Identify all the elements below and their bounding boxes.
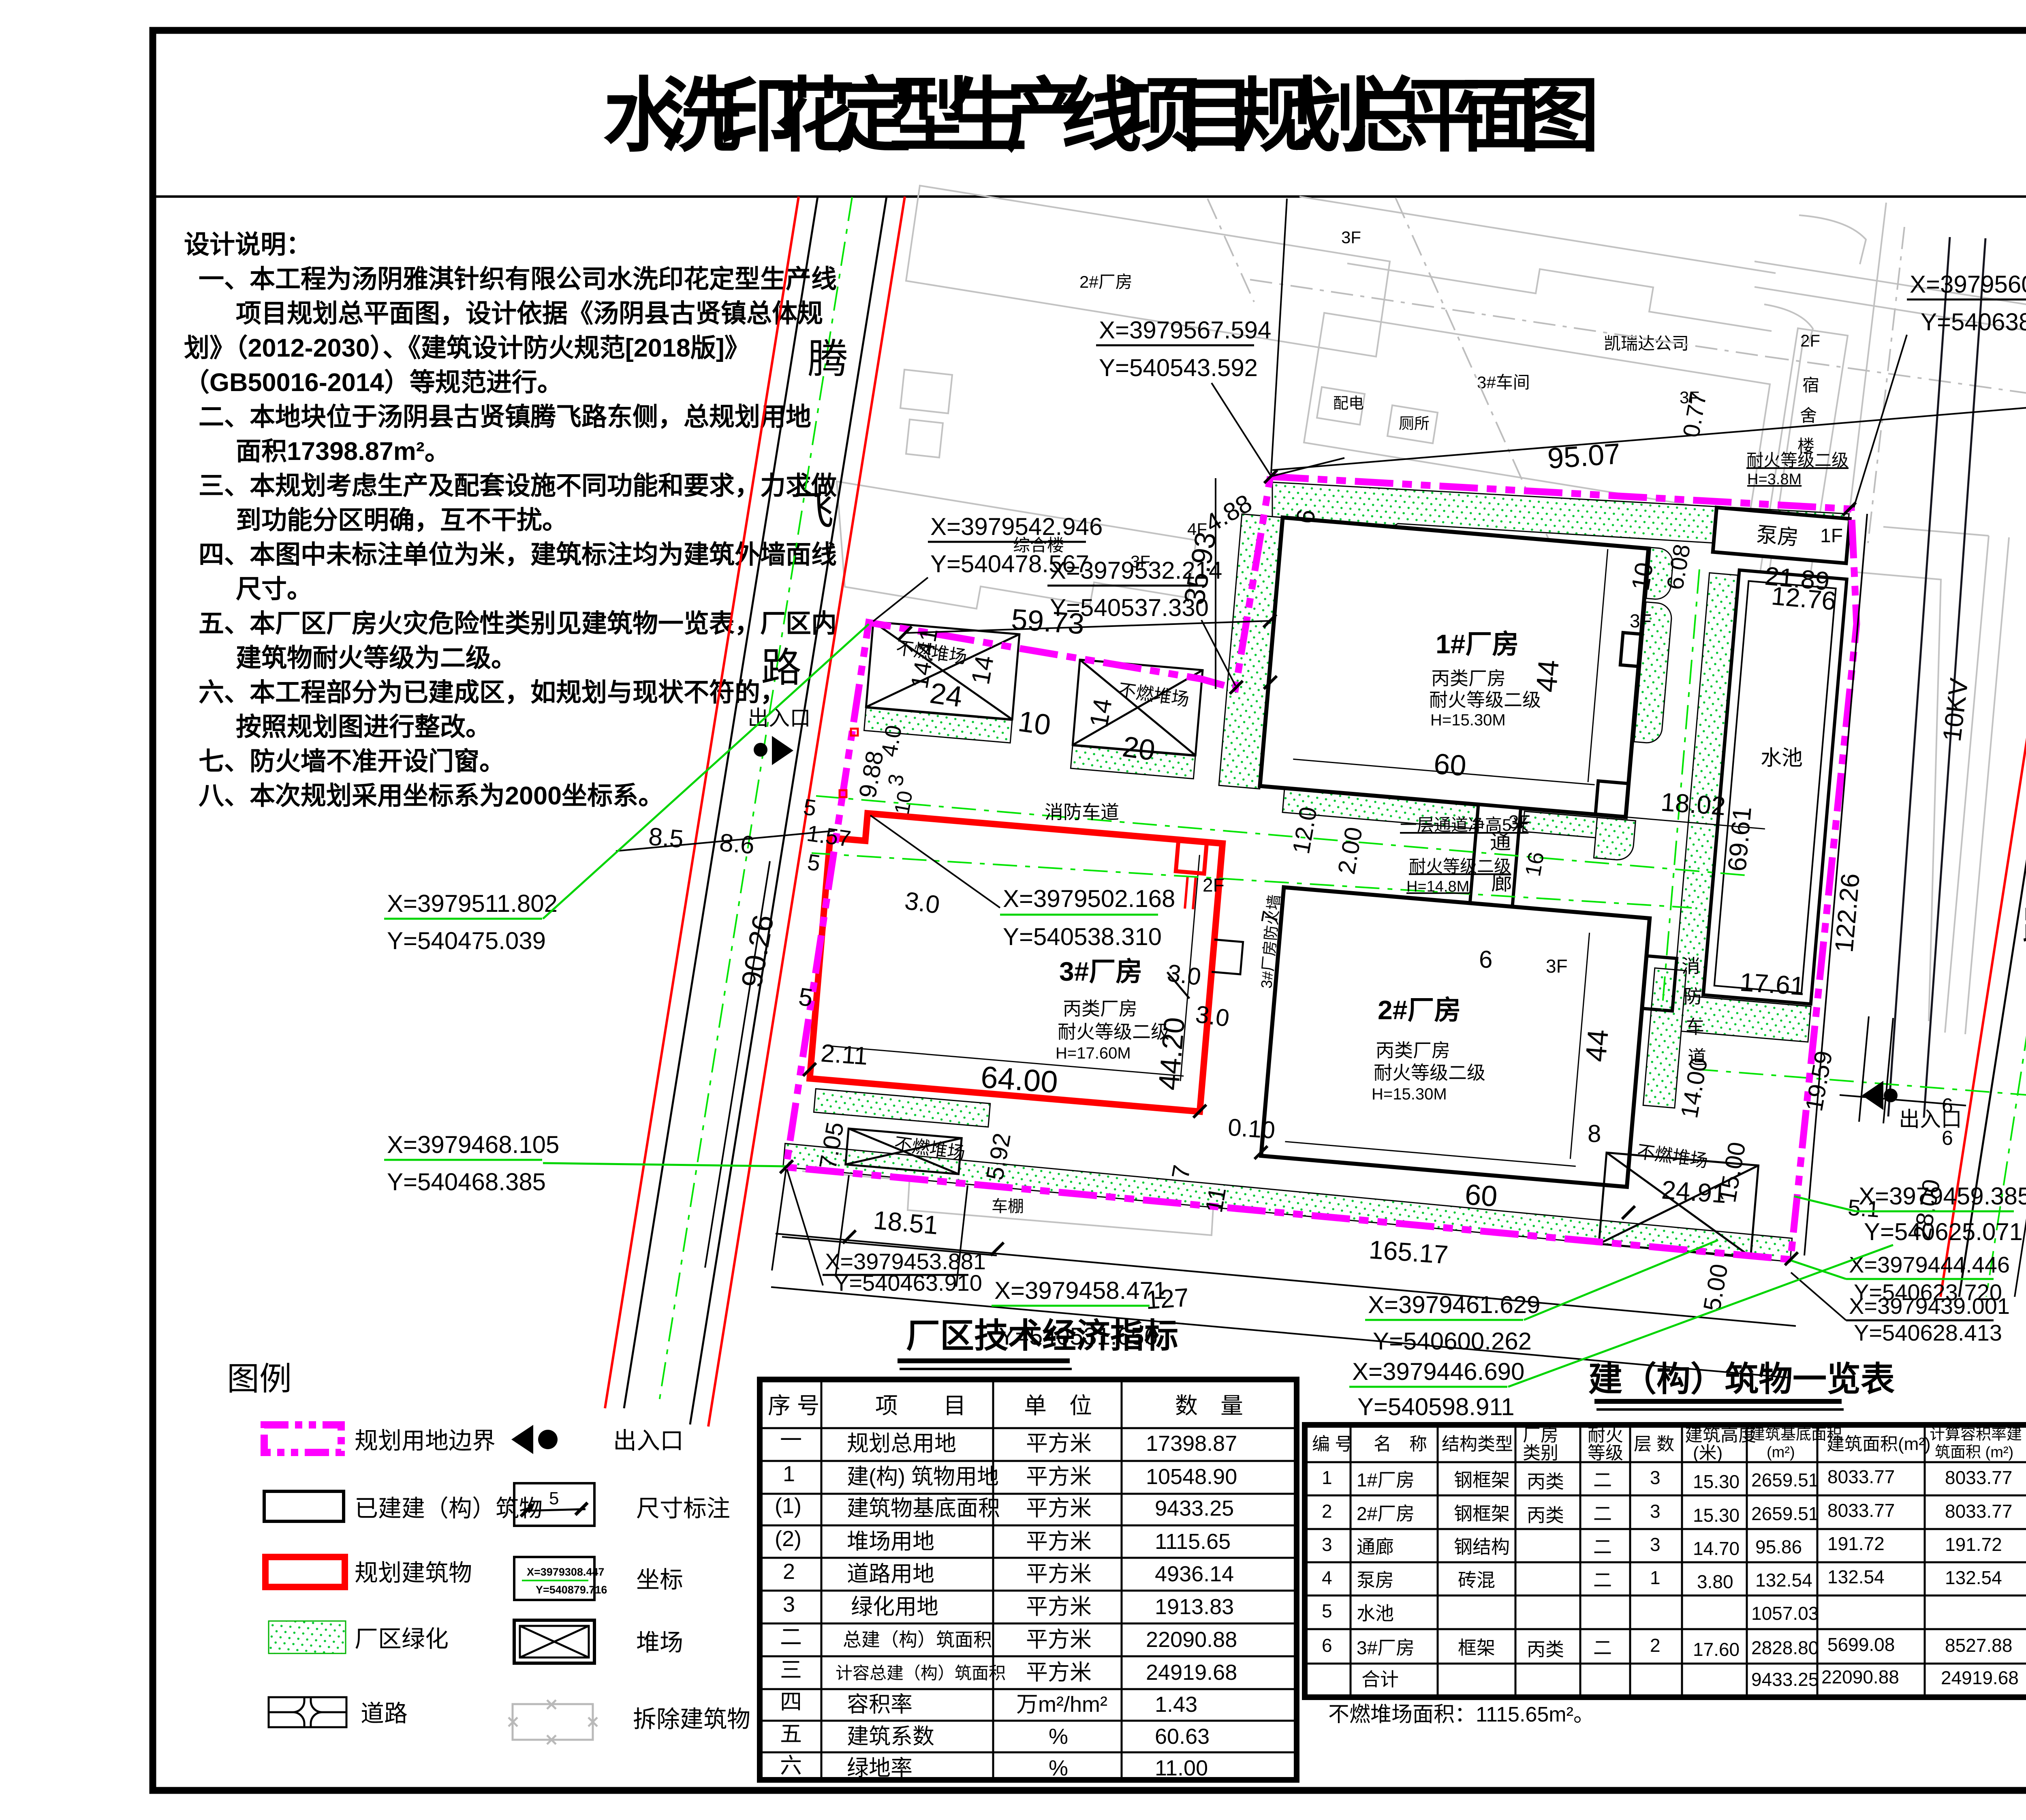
svg-text:3: 3 bbox=[1650, 1467, 1661, 1488]
svg-text:Y=540543.592: Y=540543.592 bbox=[1099, 354, 1258, 381]
svg-text:6: 6 bbox=[1942, 1127, 1953, 1149]
svg-text:丙类: 丙类 bbox=[1527, 1505, 1564, 1526]
svg-text:车: 车 bbox=[1686, 1016, 1704, 1037]
svg-text:H=3.8M: H=3.8M bbox=[1747, 471, 1802, 488]
svg-text:18.02: 18.02 bbox=[1660, 787, 1727, 821]
svg-text:平方米: 平方米 bbox=[1026, 1595, 1092, 1619]
svg-text:X=3979468.105: X=3979468.105 bbox=[387, 1131, 559, 1158]
svg-text:15.30: 15.30 bbox=[1693, 1471, 1740, 1492]
svg-text:Y=540598.911: Y=540598.911 bbox=[1357, 1393, 1515, 1420]
svg-text:二: 二 bbox=[1593, 1637, 1612, 1658]
svg-text:Y=540537.330: Y=540537.330 bbox=[1050, 594, 1209, 621]
svg-text:图例: 图例 bbox=[227, 1361, 292, 1397]
svg-text:H=15.30M: H=15.30M bbox=[1430, 711, 1506, 729]
svg-text:五: 五 bbox=[780, 1722, 802, 1746]
svg-text:水洗印花定型生产线项目规划总平面图: 水洗印花定型生产线项目规划总平面图 bbox=[603, 71, 1600, 161]
svg-text:建筑面积(m²): 建筑面积(m²) bbox=[1827, 1434, 1931, 1454]
svg-text:序 号: 序 号 bbox=[768, 1393, 820, 1418]
svg-text:2.11: 2.11 bbox=[820, 1039, 869, 1070]
svg-text:四: 四 bbox=[780, 1690, 802, 1714]
svg-text:八、本次规划采用坐标系为2000坐标系。: 八、本次规划采用坐标系为2000坐标系。 bbox=[199, 782, 664, 810]
svg-text:3.80: 3.80 bbox=[1697, 1571, 1733, 1592]
svg-text:平方米: 平方米 bbox=[1026, 1628, 1092, 1652]
svg-text:10548.90: 10548.90 bbox=[1146, 1465, 1237, 1489]
svg-text:规划用地边界: 规划用地边界 bbox=[355, 1428, 496, 1454]
svg-text:8.5: 8.5 bbox=[648, 823, 685, 853]
svg-text:出入口: 出入口 bbox=[748, 707, 811, 730]
svg-text:丙类厂房: 丙类厂房 bbox=[1063, 998, 1137, 1019]
svg-text:0.10: 0.10 bbox=[1227, 1114, 1276, 1144]
svg-text:(m²): (m²) bbox=[1767, 1444, 1795, 1461]
svg-text:11: 11 bbox=[1200, 1185, 1231, 1215]
svg-text:Y=540463.910: Y=540463.910 bbox=[834, 1270, 982, 1296]
svg-text:建筑系数: 建筑系数 bbox=[847, 1724, 934, 1749]
svg-text:舍: 舍 bbox=[1800, 406, 1817, 425]
svg-text:X=3979532.214: X=3979532.214 bbox=[1050, 557, 1222, 584]
svg-text:2: 2 bbox=[1650, 1635, 1661, 1656]
svg-text:计算容积率建: 计算容积率建 bbox=[1930, 1426, 2022, 1443]
svg-text:18.51: 18.51 bbox=[872, 1205, 939, 1240]
svg-text:结构类型: 结构类型 bbox=[1442, 1434, 1513, 1454]
svg-text:水池: 水池 bbox=[1761, 746, 1803, 770]
svg-text:17.60: 17.60 bbox=[1693, 1639, 1740, 1660]
svg-text:3: 3 bbox=[783, 1592, 795, 1617]
svg-text:拆除建筑物: 拆除建筑物 bbox=[633, 1706, 750, 1732]
svg-text:4: 4 bbox=[1322, 1567, 1332, 1588]
svg-text:165.17: 165.17 bbox=[1368, 1235, 1449, 1269]
svg-text:厂区绿化: 厂区绿化 bbox=[355, 1626, 449, 1652]
svg-text:通廊: 通廊 bbox=[1357, 1536, 1394, 1557]
svg-text:10: 10 bbox=[890, 789, 917, 816]
svg-text:单 位: 单 位 bbox=[1024, 1393, 1092, 1418]
svg-text:%: % bbox=[1049, 1724, 1068, 1749]
svg-text:消: 消 bbox=[1682, 956, 1700, 977]
svg-text:合计: 合计 bbox=[1361, 1669, 1399, 1690]
svg-text:1115.65: 1115.65 bbox=[1155, 1529, 1231, 1554]
svg-text:泵房: 泵房 bbox=[1755, 523, 1799, 550]
svg-text:3.0: 3.0 bbox=[1194, 1001, 1231, 1032]
svg-text:2659.51: 2659.51 bbox=[1751, 1503, 1819, 1524]
svg-text:平方米: 平方米 bbox=[1026, 1562, 1092, 1586]
svg-text:2: 2 bbox=[1322, 1501, 1332, 1522]
svg-text:1913.83: 1913.83 bbox=[1155, 1595, 1234, 1619]
svg-text:容积率: 容积率 bbox=[847, 1692, 913, 1717]
svg-text:道路用地: 道路用地 bbox=[847, 1562, 934, 1586]
svg-text:建筑物耐火等级为二级。: 建筑物耐火等级为二级。 bbox=[236, 644, 517, 672]
svg-text:路: 路 bbox=[2022, 904, 2026, 949]
svg-text:44: 44 bbox=[1579, 1028, 1615, 1063]
svg-text:95.07: 95.07 bbox=[1547, 438, 1622, 475]
svg-text:类别: 类别 bbox=[1523, 1443, 1558, 1463]
svg-text:七、防火墙不准开设门窗。: 七、防火墙不准开设门窗。 bbox=[199, 747, 505, 776]
svg-text:60: 60 bbox=[1433, 748, 1467, 782]
svg-text:项 目: 项 目 bbox=[875, 1393, 966, 1418]
svg-text:1057.03: 1057.03 bbox=[1751, 1603, 1819, 1624]
svg-text:编 号: 编 号 bbox=[1312, 1434, 1353, 1454]
svg-text:Y=540625.071: Y=540625.071 bbox=[1864, 1218, 2023, 1245]
svg-text:%: % bbox=[1049, 1756, 1068, 1780]
svg-text:框架: 框架 bbox=[1458, 1637, 1495, 1658]
svg-text:飞: 飞 bbox=[793, 488, 834, 534]
svg-text:车棚: 车棚 bbox=[992, 1198, 1024, 1215]
svg-text:5: 5 bbox=[1322, 1600, 1332, 1621]
svg-text:24919.68: 24919.68 bbox=[1146, 1660, 1237, 1685]
svg-text:44: 44 bbox=[1530, 659, 1565, 694]
svg-text:24.91: 24.91 bbox=[1661, 1175, 1727, 1209]
svg-text:5: 5 bbox=[549, 1489, 559, 1508]
svg-text:尺寸。: 尺寸。 bbox=[236, 575, 312, 603]
svg-text:（GB50016-2014）等规范进行。: （GB50016-2014）等规范进行。 bbox=[184, 368, 563, 397]
svg-text:60: 60 bbox=[1464, 1178, 1498, 1213]
svg-text:Y=540879.716: Y=540879.716 bbox=[536, 1584, 607, 1596]
svg-text:厂房: 厂房 bbox=[1523, 1425, 1558, 1445]
svg-text:3.0: 3.0 bbox=[1165, 959, 1203, 991]
svg-text:60.63: 60.63 bbox=[1155, 1724, 1210, 1749]
svg-text:设计说明：: 设计说明： bbox=[184, 231, 312, 259]
svg-text:3F: 3F bbox=[1341, 228, 1361, 247]
svg-text:一: 一 bbox=[780, 1428, 802, 1452]
svg-text:X=3979308.447: X=3979308.447 bbox=[527, 1566, 604, 1578]
svg-text:筑面积 (m²): 筑面积 (m²) bbox=[1935, 1444, 2013, 1461]
svg-text:二: 二 bbox=[1593, 1469, 1612, 1491]
svg-text:平方米: 平方米 bbox=[1026, 1496, 1092, 1521]
svg-text:3: 3 bbox=[1650, 1501, 1661, 1522]
svg-text:到功能分区明确，互不干扰。: 到功能分区明确，互不干扰。 bbox=[236, 506, 568, 535]
svg-text:X=3979542.946: X=3979542.946 bbox=[930, 513, 1103, 540]
svg-text:14: 14 bbox=[966, 653, 999, 687]
svg-text:绿化用地: 绿化用地 bbox=[851, 1595, 938, 1619]
svg-text:69.61: 69.61 bbox=[1722, 805, 1757, 873]
svg-text:丙类: 丙类 bbox=[1527, 1471, 1564, 1492]
svg-text:9433.25: 9433.25 bbox=[1751, 1669, 1819, 1690]
svg-text:1.43: 1.43 bbox=[1155, 1692, 1197, 1717]
svg-text:数 量: 数 量 bbox=[1175, 1393, 1243, 1418]
svg-text:耐火等级二级: 耐火等级二级 bbox=[1409, 857, 1511, 876]
svg-text:2F: 2F bbox=[1203, 875, 1225, 896]
svg-text:规划建筑物: 规划建筑物 bbox=[355, 1560, 472, 1586]
svg-text:1#厂房: 1#厂房 bbox=[1436, 629, 1519, 659]
svg-text:建筑物基底面积: 建筑物基底面积 bbox=[847, 1496, 1000, 1521]
svg-text:X=3979502.168: X=3979502.168 bbox=[1003, 885, 1175, 912]
svg-text:8033.77: 8033.77 bbox=[1827, 1466, 1895, 1487]
svg-text:三: 三 bbox=[780, 1658, 802, 1682]
svg-text:8033.77: 8033.77 bbox=[1827, 1500, 1895, 1521]
svg-text:平方米: 平方米 bbox=[1026, 1465, 1092, 1489]
svg-text:12.76: 12.76 bbox=[1770, 581, 1837, 616]
svg-text:名 称: 名 称 bbox=[1374, 1434, 1427, 1454]
svg-text:道路: 道路 bbox=[361, 1700, 408, 1727]
svg-text:H=14.8M: H=14.8M bbox=[1406, 878, 1469, 895]
svg-text:总建（构）筑面积: 总建（构）筑面积 bbox=[843, 1629, 992, 1650]
svg-text:1: 1 bbox=[1322, 1467, 1332, 1488]
svg-text:按照规划图进行整改。: 按照规划图进行整改。 bbox=[236, 713, 491, 741]
svg-text:平方米: 平方米 bbox=[1026, 1660, 1092, 1685]
svg-text:Y=540628.413: Y=540628.413 bbox=[1854, 1320, 2002, 1345]
svg-text:等级: 等级 bbox=[1588, 1443, 1623, 1463]
svg-text:191.72: 191.72 bbox=[1945, 1534, 2002, 1555]
svg-text:8: 8 bbox=[1588, 1120, 1601, 1147]
svg-text:6: 6 bbox=[1479, 946, 1492, 973]
svg-text:17.61: 17.61 bbox=[1739, 967, 1806, 1001]
svg-text:面积17398.87m²。: 面积17398.87m²。 bbox=[236, 437, 450, 466]
svg-text:X=3979458.471: X=3979458.471 bbox=[994, 1277, 1167, 1304]
svg-text:X=3979567.594: X=3979567.594 bbox=[1099, 317, 1271, 344]
svg-text:钢框架: 钢框架 bbox=[1454, 1469, 1510, 1491]
svg-text:X=3979461.629: X=3979461.629 bbox=[1368, 1291, 1540, 1318]
svg-text:44.20: 44.20 bbox=[1152, 1016, 1191, 1091]
svg-text:二、本地块位于汤阴县古贤镇腾飞路东侧，总规划用地: 二、本地块位于汤阴县古贤镇腾飞路东侧，总规划用地 bbox=[199, 403, 811, 431]
svg-text:8527.88: 8527.88 bbox=[1945, 1635, 2012, 1656]
svg-text:耐火等级二级: 耐火等级二级 bbox=[1058, 1021, 1169, 1042]
svg-text:X=3979511.802: X=3979511.802 bbox=[387, 890, 558, 917]
svg-text:Y=540600.262: Y=540600.262 bbox=[1373, 1328, 1532, 1355]
svg-text:2#厂房: 2#厂房 bbox=[1378, 995, 1461, 1025]
svg-text:3: 3 bbox=[1322, 1534, 1332, 1555]
svg-text:2: 2 bbox=[783, 1559, 795, 1584]
svg-text:X=3979459.385: X=3979459.385 bbox=[1859, 1183, 2026, 1210]
svg-text:二: 二 bbox=[1593, 1503, 1612, 1524]
svg-text:16: 16 bbox=[1521, 850, 1549, 878]
svg-text:Y=540468.385: Y=540468.385 bbox=[387, 1168, 546, 1196]
svg-text:建筑高度: 建筑高度 bbox=[1685, 1425, 1756, 1445]
svg-text:宿: 宿 bbox=[1802, 376, 1819, 395]
svg-text:耐火等级二级: 耐火等级二级 bbox=[1374, 1062, 1485, 1083]
svg-text:堆场: 堆场 bbox=[636, 1630, 683, 1656]
svg-text:14: 14 bbox=[1084, 696, 1118, 730]
svg-text:3F: 3F bbox=[1630, 610, 1652, 631]
svg-text:17398.87: 17398.87 bbox=[1146, 1431, 1237, 1456]
svg-text:15.30: 15.30 bbox=[1693, 1505, 1740, 1526]
svg-text:平方米: 平方米 bbox=[1026, 1529, 1092, 1554]
svg-text:24: 24 bbox=[928, 677, 964, 713]
svg-text:路: 路 bbox=[761, 645, 801, 691]
svg-text:耐火: 耐火 bbox=[1588, 1425, 1623, 1445]
svg-text:3#厂房: 3#厂房 bbox=[1059, 956, 1142, 986]
svg-text:防: 防 bbox=[1684, 986, 1702, 1007]
svg-text:丙类厂房: 丙类厂房 bbox=[1376, 1040, 1450, 1061]
svg-text:绿地率: 绿地率 bbox=[847, 1756, 913, 1780]
svg-text:划》（2012-2030）、《建筑设计防火规范[2018版]: 划》（2012-2030）、《建筑设计防火规范[2018版]》 bbox=[184, 334, 750, 362]
svg-text:2#厂房: 2#厂房 bbox=[1357, 1503, 1415, 1524]
svg-text:规划总用地: 规划总用地 bbox=[847, 1431, 956, 1456]
svg-text:X=3979439.001: X=3979439.001 bbox=[1849, 1293, 2010, 1319]
svg-text:64.00: 64.00 bbox=[980, 1060, 1059, 1099]
svg-text:平方米: 平方米 bbox=[1026, 1431, 1092, 1456]
svg-text:24919.68: 24919.68 bbox=[1941, 1667, 2019, 1688]
svg-text:三、本规划考虑生产及配套设施不同功能和要求，力求做: 三、本规划考虑生产及配套设施不同功能和要求，力求做 bbox=[199, 472, 837, 500]
svg-text:1#厂房: 1#厂房 bbox=[1357, 1469, 1415, 1491]
svg-text:出入口: 出入口 bbox=[613, 1428, 684, 1454]
svg-text:10: 10 bbox=[1016, 705, 1053, 742]
svg-text:(米): (米) bbox=[1693, 1443, 1723, 1463]
svg-text:3#车间: 3#车间 bbox=[1477, 373, 1530, 392]
svg-text:万m²/hm²: 万m²/hm² bbox=[1016, 1692, 1107, 1717]
svg-text:X=3979446.690: X=3979446.690 bbox=[1352, 1358, 1524, 1385]
svg-text:2#厂房: 2#厂房 bbox=[1079, 272, 1133, 291]
svg-text:9433.25: 9433.25 bbox=[1155, 1496, 1234, 1521]
svg-text:22090.88: 22090.88 bbox=[1146, 1628, 1237, 1652]
svg-text:22090.88: 22090.88 bbox=[1821, 1666, 1899, 1687]
svg-text:耐火等级二级: 耐火等级二级 bbox=[1746, 451, 1849, 470]
svg-text:14.70: 14.70 bbox=[1693, 1538, 1740, 1559]
svg-text:水池: 水池 bbox=[1357, 1603, 1394, 1624]
svg-text:6: 6 bbox=[1322, 1635, 1332, 1656]
svg-text:配电: 配电 bbox=[1333, 395, 1364, 412]
svg-text:Y=540475.039: Y=540475.039 bbox=[387, 927, 546, 954]
svg-text:X=3979560.846: X=3979560.846 bbox=[1910, 271, 2026, 298]
svg-text:砖混: 砖混 bbox=[1458, 1570, 1495, 1591]
svg-text:H=17.60M: H=17.60M bbox=[1056, 1044, 1131, 1062]
svg-text:3#厂房: 3#厂房 bbox=[1357, 1637, 1415, 1658]
svg-text:厕所: 厕所 bbox=[1399, 415, 1430, 432]
svg-text:钢框架: 钢框架 bbox=[1454, 1503, 1510, 1524]
svg-text:95.86: 95.86 bbox=[1755, 1536, 1802, 1557]
svg-text:堆场用地: 堆场用地 bbox=[847, 1529, 934, 1554]
svg-text:层 数: 层 数 bbox=[1634, 1434, 1674, 1454]
svg-text:二: 二 bbox=[1593, 1570, 1612, 1591]
svg-text:4936.14: 4936.14 bbox=[1155, 1562, 1234, 1586]
svg-text:132.54: 132.54 bbox=[1755, 1570, 1812, 1591]
svg-text:8.6: 8.6 bbox=[718, 829, 756, 860]
svg-text:X=3979444.446: X=3979444.446 bbox=[1849, 1252, 2010, 1277]
svg-text:消防车道: 消防车道 bbox=[1045, 802, 1119, 823]
svg-text:3F: 3F bbox=[1546, 956, 1568, 977]
svg-text:132.54: 132.54 bbox=[1827, 1566, 1885, 1587]
svg-text:20: 20 bbox=[1120, 730, 1157, 767]
svg-text:H=15.30M: H=15.30M bbox=[1372, 1085, 1447, 1103]
svg-text:六: 六 bbox=[780, 1754, 802, 1778]
svg-text:(2): (2) bbox=[775, 1527, 801, 1551]
svg-text:尺寸标注: 尺寸标注 bbox=[636, 1495, 730, 1522]
svg-text:2828.80: 2828.80 bbox=[1751, 1637, 1819, 1658]
svg-text:腾: 腾 bbox=[808, 336, 848, 382]
svg-text:3: 3 bbox=[1650, 1534, 1661, 1555]
svg-text:坐标: 坐标 bbox=[636, 1567, 683, 1593]
svg-text:丙类: 丙类 bbox=[1527, 1639, 1564, 1660]
svg-text:六、本工程部分为已建成区，如规划与现状不符的，: 六、本工程部分为已建成区，如规划与现状不符的， bbox=[199, 678, 786, 707]
svg-text:1: 1 bbox=[783, 1462, 795, 1486]
svg-text:1F: 1F bbox=[1820, 525, 1843, 547]
svg-text:5699.08: 5699.08 bbox=[1827, 1634, 1895, 1655]
svg-text:1: 1 bbox=[1650, 1567, 1661, 1588]
svg-text:耐火等级二级: 耐火等级二级 bbox=[1429, 689, 1541, 710]
svg-text:8033.77: 8033.77 bbox=[1945, 1467, 2012, 1488]
svg-text:2659.51: 2659.51 bbox=[1751, 1469, 1819, 1491]
svg-text:建（构）筑物一览表: 建（构）筑物一览表 bbox=[1588, 1360, 1895, 1398]
svg-text:不燃堆场面积：1115.65m²。: 不燃堆场面积：1115.65m²。 bbox=[1328, 1703, 1594, 1726]
svg-text:钢结构: 钢结构 bbox=[1454, 1536, 1510, 1557]
svg-text:6: 6 bbox=[1942, 1094, 1953, 1117]
svg-text:Y=540638.424: Y=540638.424 bbox=[1921, 308, 2026, 336]
svg-text:191.72: 191.72 bbox=[1827, 1533, 1885, 1554]
svg-text:一层通道净高5米: 一层通道净高5米 bbox=[1400, 815, 1528, 834]
svg-text:项目规划总平面图，设计依据《汤阴县古贤镇总体规: 项目规划总平面图，设计依据《汤阴县古贤镇总体规 bbox=[236, 299, 823, 328]
svg-text:计容总建（构）筑面积: 计容总建（构）筑面积 bbox=[836, 1664, 1006, 1683]
svg-text:二: 二 bbox=[780, 1625, 802, 1649]
svg-text:泵房: 泵房 bbox=[1357, 1570, 1394, 1591]
svg-text:丙类厂房: 丙类厂房 bbox=[1431, 668, 1506, 689]
svg-text:Y=540538.310: Y=540538.310 bbox=[1003, 923, 1162, 950]
svg-text:8033.77: 8033.77 bbox=[1945, 1501, 2012, 1522]
svg-text:一、本工程为汤阴雅淇针织有限公司水洗印花定型生产线: 一、本工程为汤阴雅淇针织有限公司水洗印花定型生产线 bbox=[199, 265, 837, 293]
svg-text:(1): (1) bbox=[775, 1494, 801, 1518]
svg-text:厂区技术经济指标: 厂区技术经济指标 bbox=[906, 1317, 1178, 1355]
svg-text:11.00: 11.00 bbox=[1155, 1756, 1208, 1780]
svg-text:二: 二 bbox=[1593, 1536, 1612, 1557]
svg-text:建(构) 筑物用地: 建(构) 筑物用地 bbox=[847, 1465, 999, 1489]
svg-text:10: 10 bbox=[1626, 560, 1659, 593]
svg-text:132.54: 132.54 bbox=[1945, 1567, 2002, 1588]
svg-text:五、本厂区厂房火灾危险性类别见建筑物一览表，厂区内: 五、本厂区厂房火灾危险性类别见建筑物一览表，厂区内 bbox=[199, 610, 837, 638]
svg-text:3.0: 3.0 bbox=[903, 887, 942, 919]
